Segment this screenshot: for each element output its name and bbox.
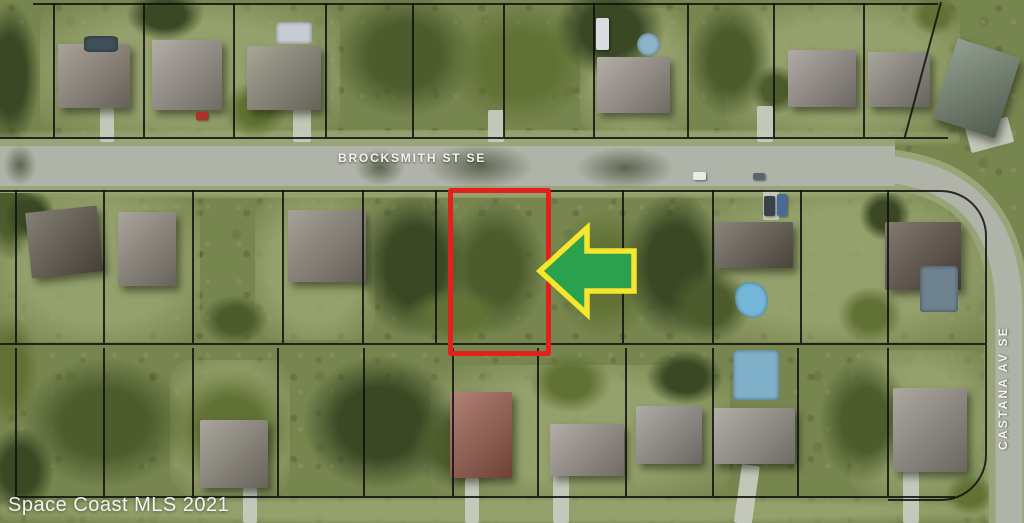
street-label-castana-text: CASTANA AV SE [996, 326, 1010, 450]
street-label-castana: CASTANA AV SE [994, 288, 1012, 488]
arrow-annotation-layer [0, 0, 1024, 523]
aerial-parcel-map: BROCKSMITH ST SE CASTANA AV SE Space Coa… [0, 0, 1024, 523]
street-label-brocksmith: BROCKSMITH ST SE [338, 151, 486, 165]
subject-lot-arrow-icon [540, 228, 634, 314]
mls-watermark: Space Coast MLS 2021 [8, 494, 229, 517]
